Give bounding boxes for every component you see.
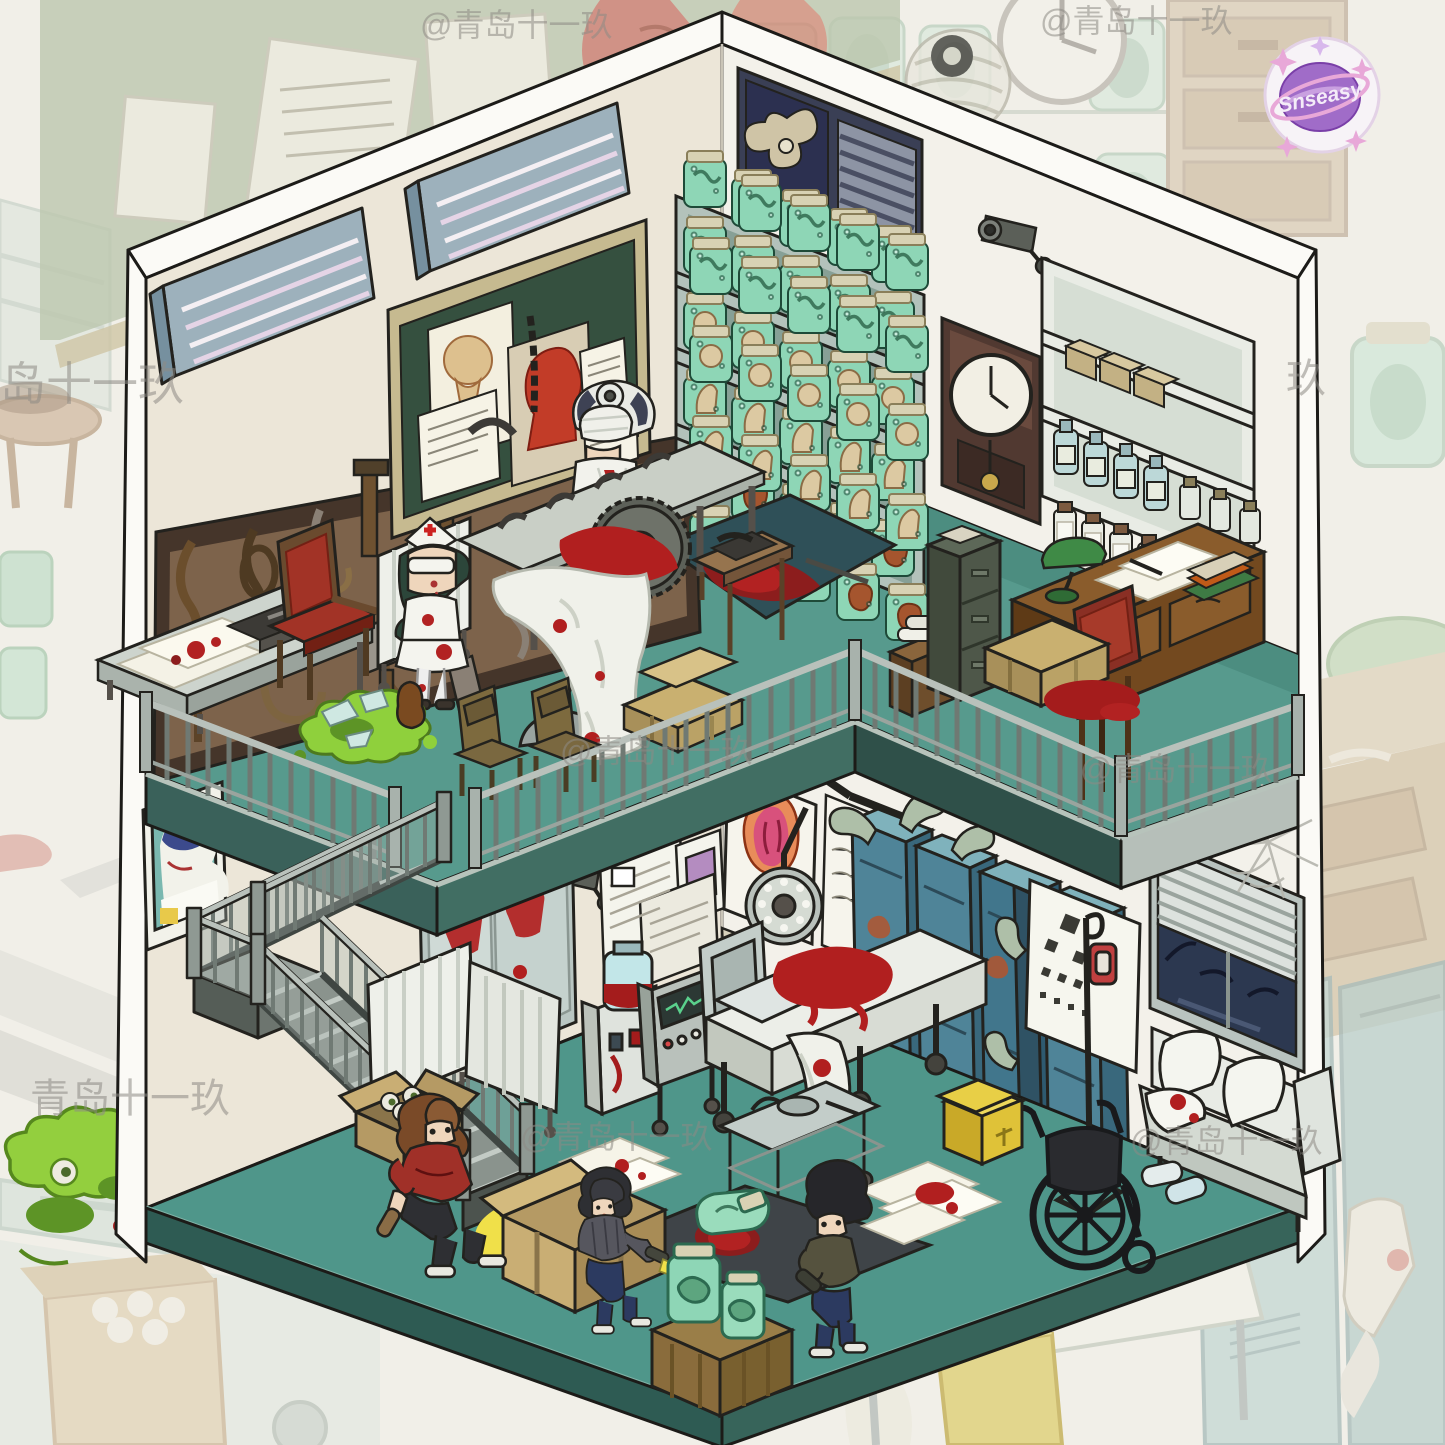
svg-text:青岛十一玖: 青岛十一玖 [30,1077,230,1121]
svg-text:@青岛十一玖: @青岛十一玖 [520,1119,713,1155]
svg-text:@青岛十一玖: @青岛十一玖 [560,733,753,769]
svg-text:@青岛十一玖: @青岛十一玖 [1130,1123,1323,1159]
svg-text:玖: 玖 [1286,357,1326,401]
svg-text:@青岛十一玖: @青岛十一玖 [1040,3,1233,39]
svg-text:@青岛十一玖: @青岛十一玖 [1080,751,1273,787]
svg-text:@青岛十一玖: @青岛十一玖 [420,7,613,43]
svg-text:岛十一玖: 岛十一玖 [0,358,184,410]
